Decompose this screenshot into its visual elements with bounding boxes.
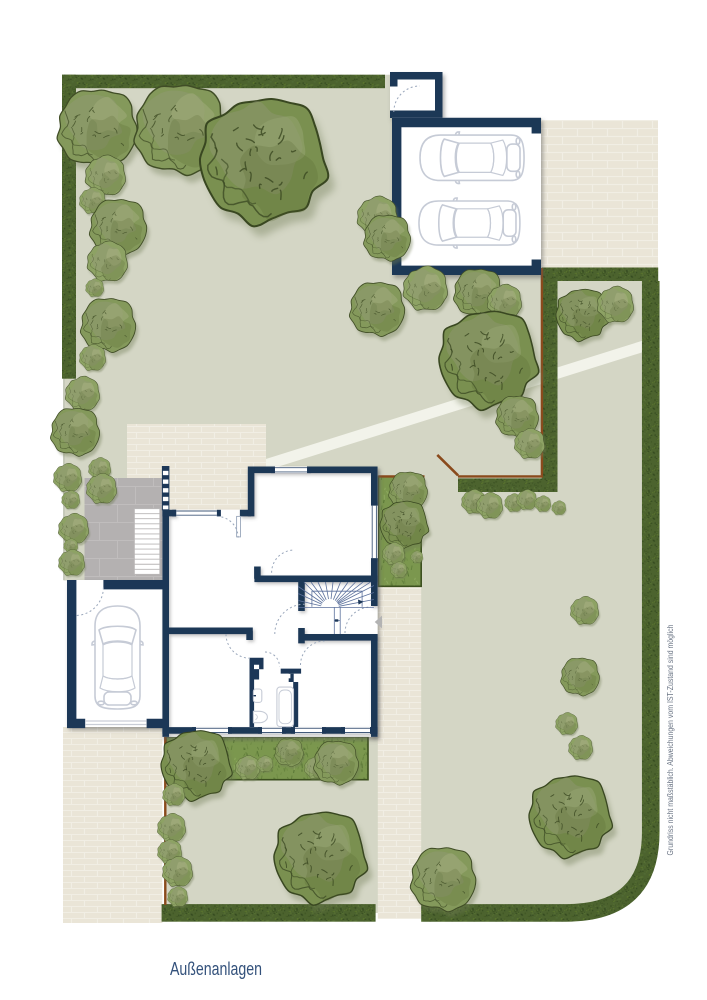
svg-text:Außenanlagen: Außenanlagen — [170, 959, 262, 979]
svg-text:Grundriss nicht maßstäblich. A: Grundriss nicht maßstäblich. Abweichunge… — [665, 624, 675, 855]
